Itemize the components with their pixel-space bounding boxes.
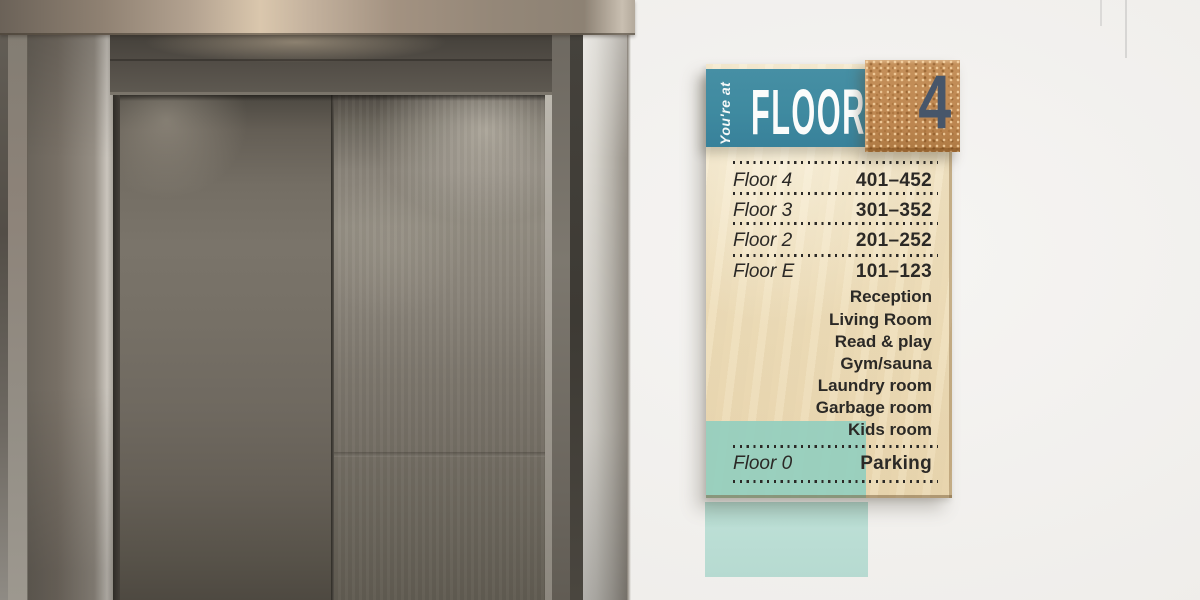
mint-painted-square <box>705 502 868 577</box>
elevator-door-right <box>331 95 545 600</box>
floor-range: Parking <box>860 453 938 475</box>
dotted-divider <box>733 480 938 483</box>
elevator-frame-outer-edge <box>0 35 8 600</box>
directory-row: Floor 3 301–352 <box>733 198 938 224</box>
directory-row: Floor 2 201–252 <box>733 228 938 254</box>
amenity-item: Kids room <box>733 419 938 441</box>
dotted-divider <box>733 222 938 225</box>
dotted-divider <box>733 161 938 164</box>
floor-label: Floor 0 <box>733 453 792 475</box>
amenity-item: Gym/sauna <box>733 353 938 375</box>
dotted-divider <box>733 445 938 448</box>
sign-header-title: FLOOR <box>751 80 866 144</box>
elevator-frame-outer-panel <box>8 35 28 600</box>
elevator-right-reveal-gap <box>570 35 583 600</box>
dotted-divider <box>733 192 938 195</box>
elevator-left-jamb <box>28 35 113 600</box>
floor-range: 101–123 <box>856 261 938 283</box>
directory-row: Floor 4 401–452 <box>733 168 938 194</box>
floor-label: Floor 3 <box>733 200 792 222</box>
floor-range: 301–352 <box>856 200 938 222</box>
sign-header-band: You're at FLOOR <box>706 69 866 147</box>
wall-seam-line <box>1100 0 1102 26</box>
elevator-header-panel <box>0 0 635 35</box>
elevator-right-inner-edge <box>545 35 552 600</box>
floor-label: Floor 2 <box>733 230 792 252</box>
amenity-item: Reception <box>733 286 938 308</box>
elevator-door-opening <box>120 95 545 600</box>
floor-label: Floor E <box>733 261 794 283</box>
dotted-divider <box>733 254 938 257</box>
elevator-right-pillar <box>583 35 627 600</box>
elevator <box>0 0 632 600</box>
sign-header-prefix: You're at <box>717 73 733 145</box>
elevator-left-reveal-gap <box>113 35 120 600</box>
floor-range: 201–252 <box>856 230 938 252</box>
amenity-item: Living Room <box>733 309 938 331</box>
amenity-item: Read & play <box>733 331 938 353</box>
wall-seam-line <box>1125 0 1127 58</box>
elevator-door-left <box>120 95 331 600</box>
amenity-item: Laundry room <box>733 375 938 397</box>
amenity-item: Garbage room <box>733 397 938 419</box>
floor-range: 401–452 <box>856 170 938 192</box>
directory-row: Floor 0 Parking <box>733 451 938 477</box>
elevator-transom-panel <box>110 35 552 95</box>
floor-number: 4 <box>918 57 951 149</box>
floor-label: Floor 4 <box>733 170 792 192</box>
elevator-right-jamb <box>552 35 570 600</box>
elevator-right-pillar-edge <box>627 35 631 600</box>
cork-floor-number-tile: 4 <box>865 60 960 152</box>
directory-row: Floor E 101–123 <box>733 259 938 285</box>
elevator-lobby-photo: Floor 4 401–452 Floor 3 301–352 Floor 2 … <box>0 0 1200 600</box>
